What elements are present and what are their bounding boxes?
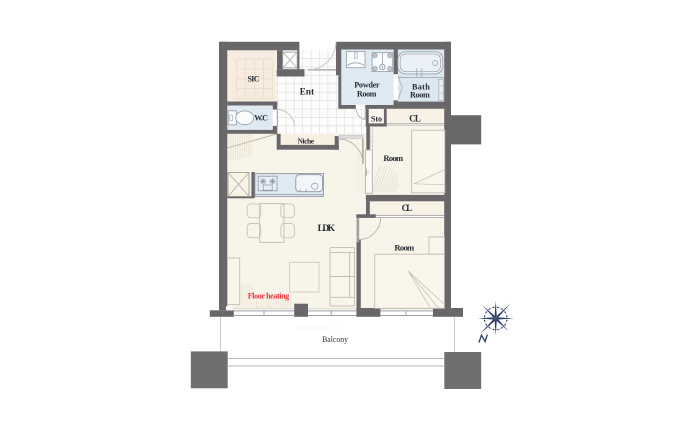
svg-text:Niche: Niche (298, 137, 315, 146)
svg-text:Powder: Powder (354, 81, 380, 90)
svg-text:SIC: SIC (248, 74, 260, 83)
svg-text:Sto: Sto (371, 114, 382, 123)
svg-text:CL: CL (409, 113, 421, 123)
svg-text:Room: Room (383, 153, 404, 163)
svg-text:Room: Room (410, 90, 430, 99)
svg-text:Room: Room (394, 242, 415, 252)
svg-text:W.C: W.C (254, 114, 268, 123)
svg-text:CL: CL (402, 203, 413, 213)
svg-text:Floor heating: Floor heating (248, 291, 290, 300)
svg-text:LDK: LDK (318, 224, 336, 234)
svg-text:Ent: Ent (300, 86, 314, 96)
svg-text:Room: Room (357, 89, 377, 98)
svg-text:Balcony: Balcony (322, 334, 349, 344)
